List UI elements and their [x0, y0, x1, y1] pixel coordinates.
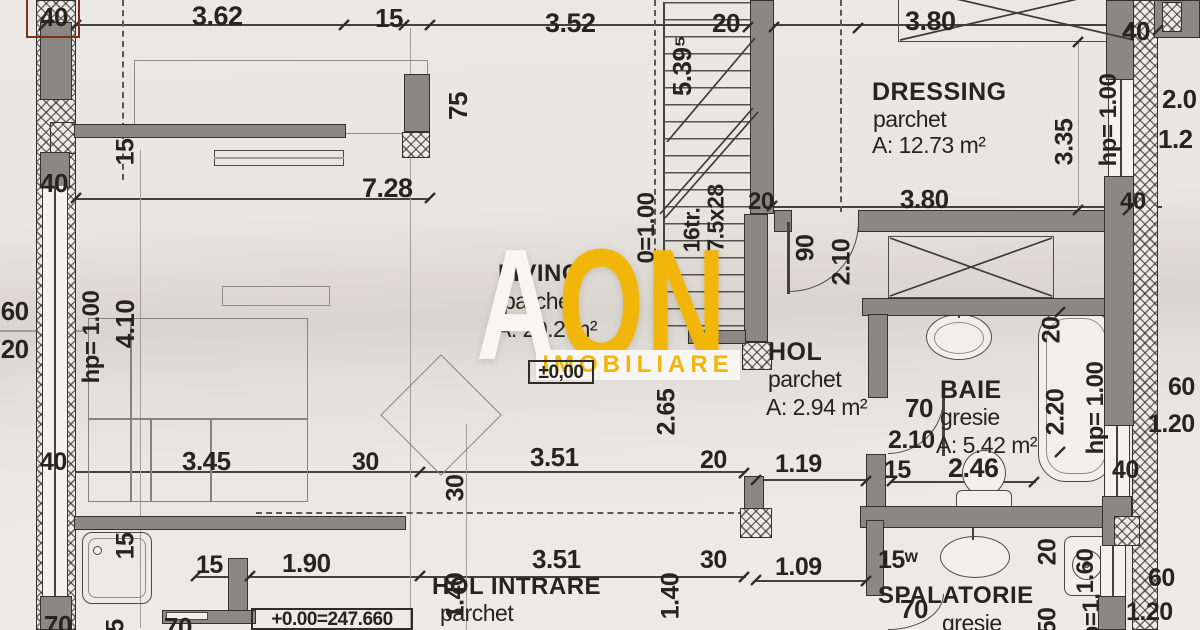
dim-label: hp= 1.00 — [80, 291, 104, 384]
elevation-marker-living: ±0,00 — [528, 360, 594, 384]
dim-label: 70 — [44, 612, 72, 630]
dim-label: 40 — [40, 170, 68, 196]
dim-label: 1.20 — [1126, 600, 1173, 625]
dim-label: 40 — [1120, 190, 1146, 214]
dim-label: 50 — [1036, 608, 1061, 630]
dim-label: 5.39⁵ — [669, 36, 695, 96]
dim-label: 15 — [196, 553, 223, 578]
dim-label: 15 — [114, 139, 139, 166]
dim-label: 15 — [375, 5, 403, 31]
dim-label: 3.45 — [182, 448, 231, 474]
dim-label: 40 — [1112, 458, 1139, 483]
room-name-hol-intrare: HOL INTRARE — [432, 575, 601, 599]
dim-label: 2.65 — [655, 389, 680, 436]
wall-pier — [1114, 516, 1140, 546]
dim-label: 2.46 — [948, 455, 999, 482]
dim-label: 3.51 — [530, 444, 579, 470]
dim-label: 15 — [884, 458, 911, 483]
dim-label: 20 — [1040, 317, 1065, 344]
room-floor-spalatorie: gresie — [942, 612, 1002, 630]
dim-label: .60 — [0, 298, 29, 324]
dim-label: 60 — [1168, 375, 1195, 400]
dim-label: 1.20 — [1148, 412, 1195, 437]
elevation-value-entry: +0.00=247.660 — [271, 610, 392, 629]
elevation-marker-entry: +0.00=247.660 — [251, 608, 413, 630]
dim-label: hp=1. — [1080, 594, 1104, 630]
dim-label: 3.35 — [1053, 119, 1078, 166]
room-floor-hol-intrare: parchet — [440, 602, 513, 625]
dim-label: 2.20 — [1044, 389, 1069, 436]
room-floor-baie: gresie — [940, 406, 1000, 429]
room-floor-dressing: parchet — [873, 108, 946, 131]
floor-plan: 40 3.62 15 3.52 20 3.80 40 40 7.28 20 3.… — [0, 0, 1200, 630]
dim-label: hp= 1.00 — [1097, 74, 1121, 167]
dim-label: 3.62 — [192, 3, 243, 30]
dim-label: 75 — [445, 92, 471, 120]
dim-label: hp= 1.00 — [1084, 362, 1108, 455]
dim-label: 1.60 — [1074, 549, 1098, 594]
dim-label: 70 — [164, 614, 192, 630]
dim-label: 20 — [1036, 539, 1061, 566]
dim-label: 20 — [712, 10, 740, 36]
dim-label: 1.90 — [282, 550, 331, 576]
room-area-hol: A: 2.94 m² — [766, 396, 867, 419]
dim-label: .20 — [0, 336, 29, 362]
room-name-spalatorie: SPALATORIE — [878, 584, 1034, 608]
dim-label: 30 — [700, 548, 727, 573]
dim-label: 15 — [114, 533, 139, 560]
dim-label: 2.0 — [1162, 86, 1197, 112]
dim-label: 1.2 — [1158, 126, 1193, 152]
dim-label: 40 — [40, 4, 68, 30]
dim-label: 3.80 — [900, 186, 949, 212]
dim-label: 7.28 — [362, 175, 413, 202]
room-name-baie: BAIE — [940, 378, 1002, 403]
dim-label: 20 — [700, 448, 727, 473]
dim-label: 15ʷ — [878, 548, 917, 573]
dim-label: 2.10 — [888, 428, 935, 453]
dim-label: 3.51 — [532, 546, 581, 572]
dim-label: 70 — [905, 395, 933, 421]
dim-label: 3.80 — [905, 8, 956, 35]
dim-label: 60 — [1148, 566, 1175, 591]
dim-label: 1.19 — [775, 452, 822, 477]
room-area-baie: A: 5.42 m² — [936, 434, 1037, 457]
room-name-dressing: DRESSING — [872, 80, 1007, 105]
elevation-value-living: ±0,00 — [539, 363, 584, 382]
dim-label: 1.40 — [659, 573, 684, 620]
dim-label: 30 — [352, 450, 379, 475]
dim-label: 20 — [748, 190, 774, 214]
dim-label: 40 — [40, 450, 67, 475]
dim-label: 4.10 — [112, 300, 138, 349]
dim-label: 30 — [444, 475, 469, 502]
dim-label: 1.09 — [775, 555, 822, 580]
dim-label: 5 — [104, 619, 129, 630]
dim-label: 40 — [1122, 18, 1150, 44]
room-area-dressing: A: 12.73 m² — [872, 134, 985, 157]
dim-label: 3.52 — [545, 10, 596, 37]
